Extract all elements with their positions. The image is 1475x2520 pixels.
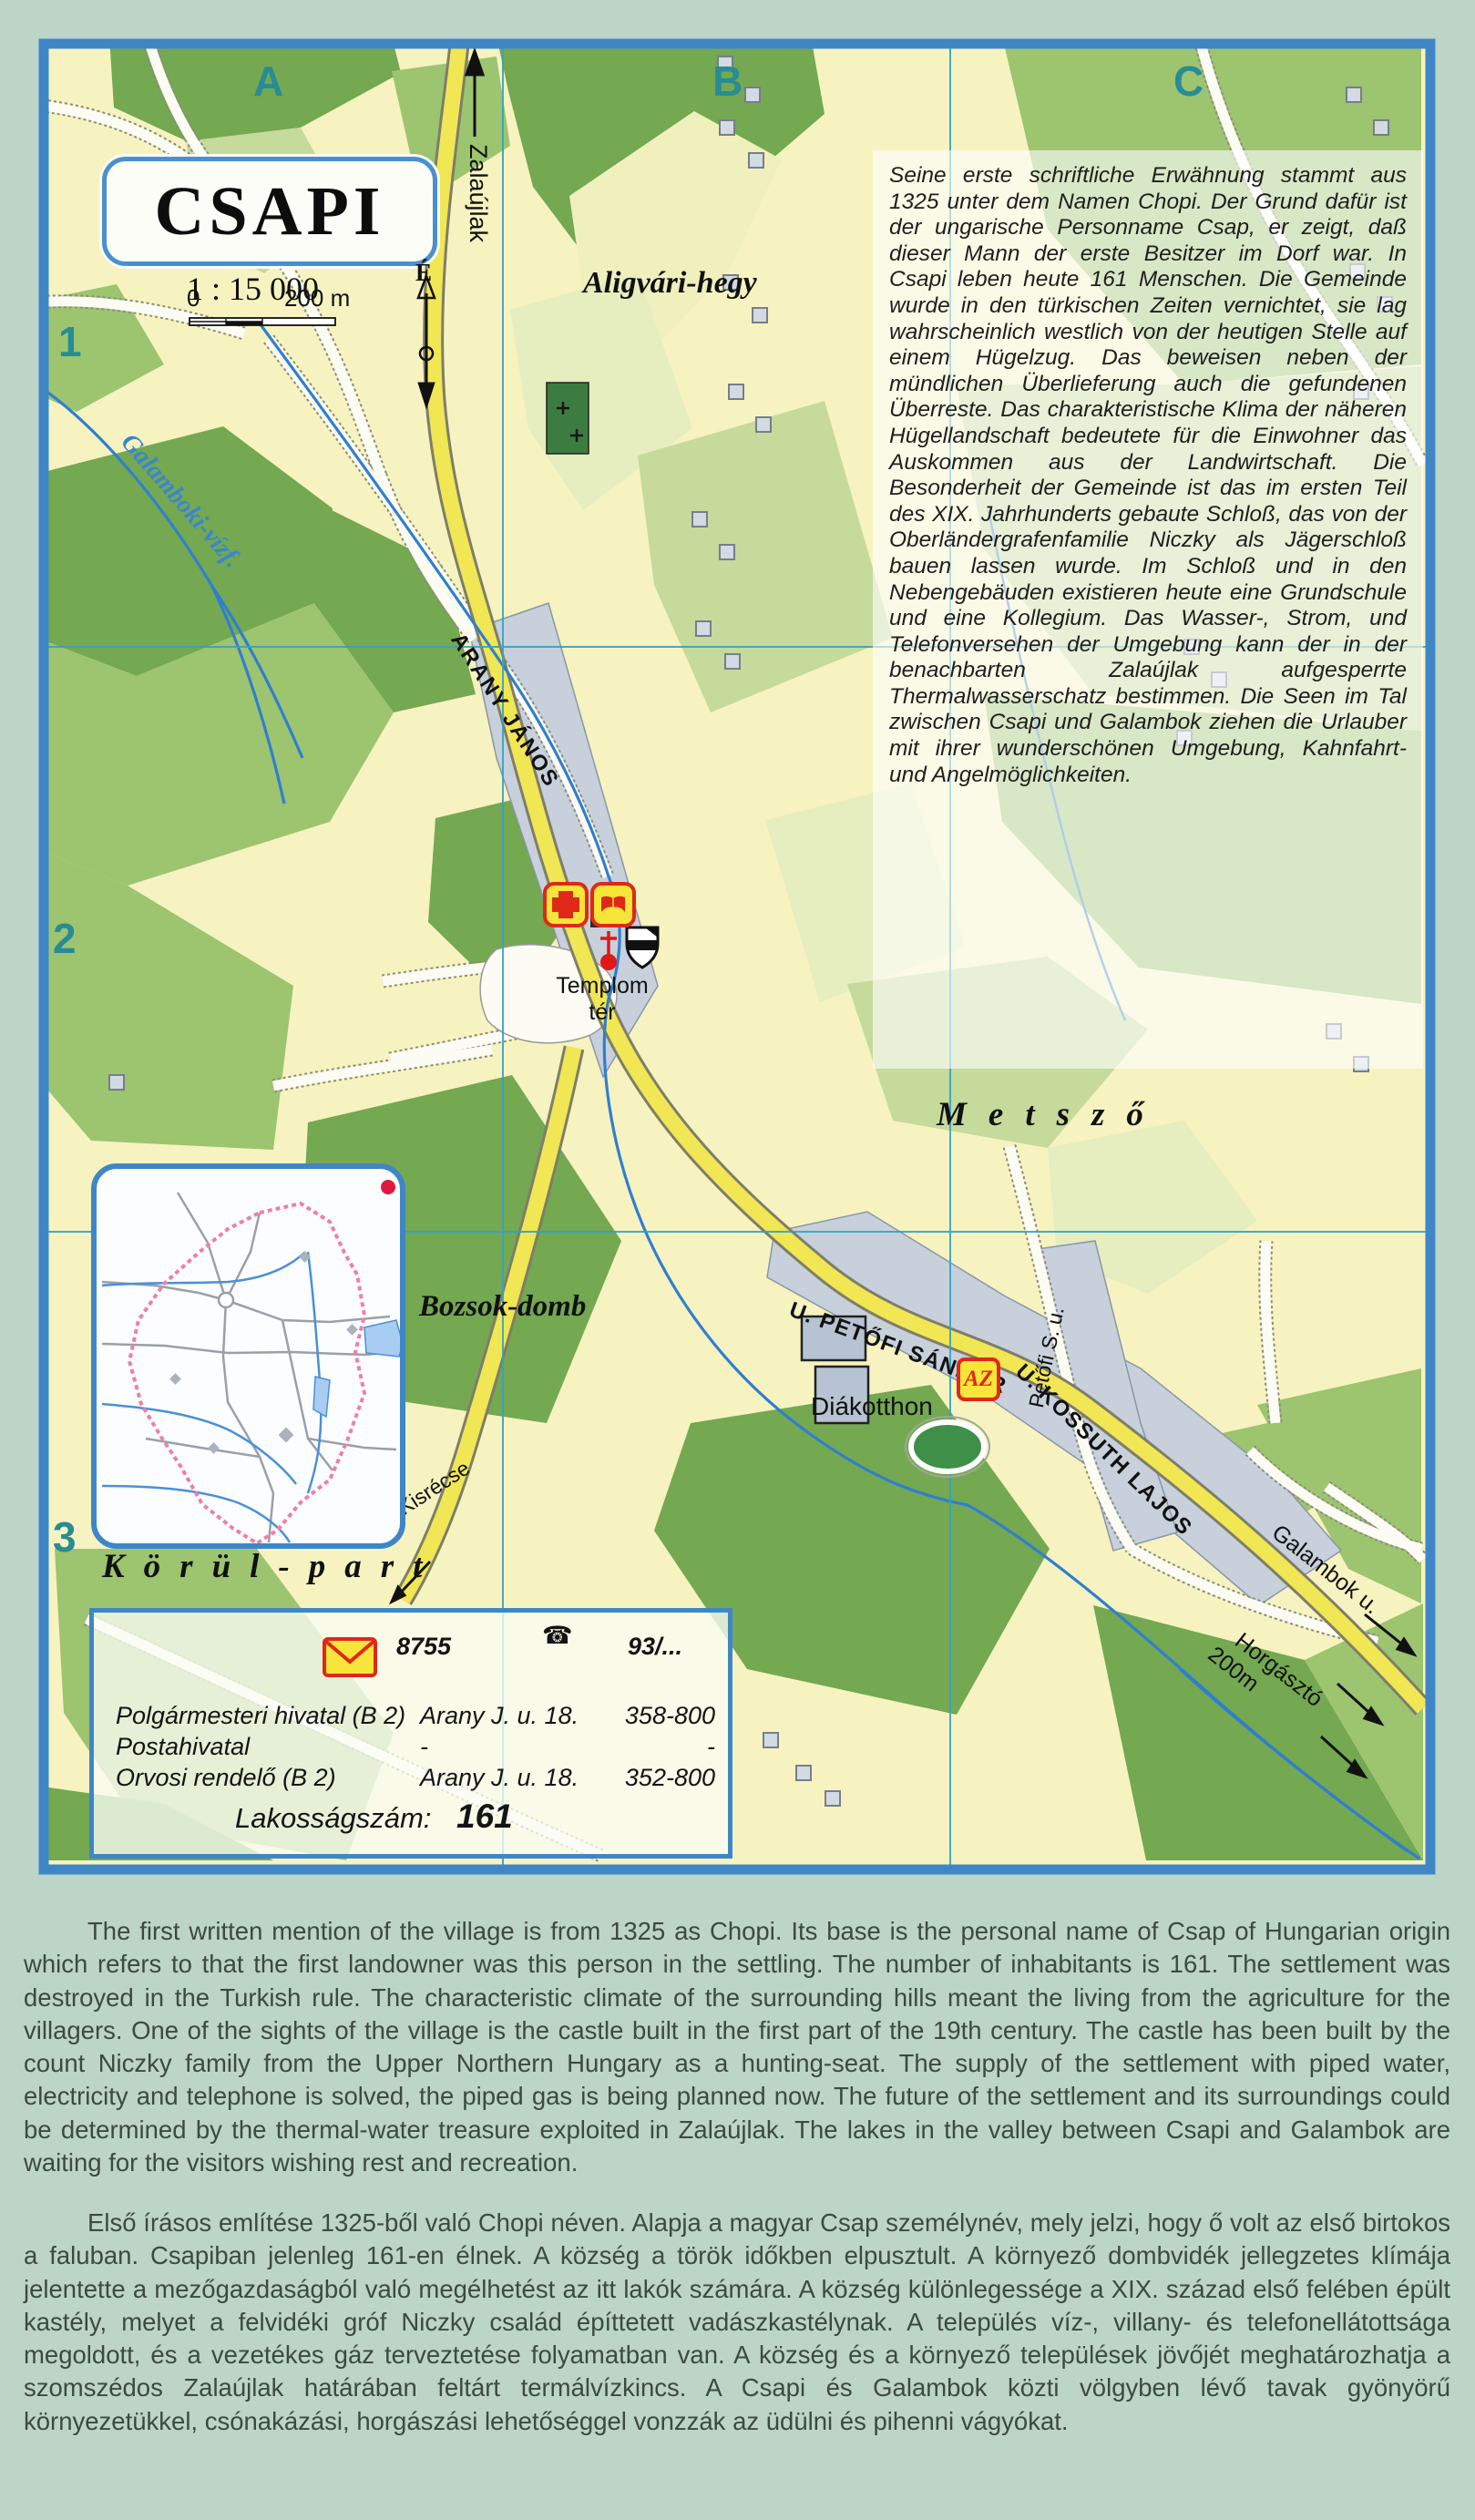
- entry-phone-1: -: [600, 1733, 715, 1761]
- grid-row-1: 1: [58, 317, 82, 366]
- library-icon: [592, 884, 634, 926]
- entry-phone-0: 358-800: [600, 1702, 715, 1730]
- building-label-diakotthon: Diákotthon: [811, 1392, 933, 1421]
- area-label-korul-part: Körül-part: [102, 1547, 441, 1586]
- region-inset-map: [91, 1163, 405, 1549]
- inset-region-boundary: [129, 1204, 364, 1543]
- population-value: 161: [456, 1798, 513, 1836]
- entry-name-1: Postahivatal: [116, 1733, 250, 1761]
- cemetery-symbol: [547, 383, 589, 454]
- first-aid-icon: [545, 884, 587, 926]
- phone-prefix: 93/...: [628, 1633, 682, 1661]
- postal-code: 8755: [396, 1633, 451, 1661]
- templom-ter-line1: Templom: [543, 973, 661, 999]
- entry-address-2: Arany J. u. 18.: [420, 1764, 579, 1792]
- grid-row-2: 2: [53, 914, 77, 963]
- az-monument-icon: AZ: [957, 1357, 1000, 1401]
- entry-name-2: Orvosi rendelő (B 2): [116, 1764, 336, 1792]
- scale-distance-label: 200 m: [284, 284, 350, 312]
- village-info-box: 8755 ☎ 93/... Polgármesteri hivatal (B 2…: [89, 1608, 732, 1859]
- grid-column-a: A: [253, 56, 283, 106]
- entry-name-0: Polgármesteri hivatal (B 2): [116, 1702, 405, 1730]
- square-label-templom-ter: Templom tér: [543, 973, 661, 1026]
- scale-zero-label: 0: [187, 284, 200, 312]
- entry-phone-2: 352-800: [600, 1764, 715, 1792]
- phone-icon: ☎: [542, 1624, 573, 1648]
- hungarian-description: Első írásos említése 1325-ből való Chopi…: [24, 2207, 1450, 2438]
- english-description: The first written mention of the village…: [24, 1915, 1450, 2179]
- page-title: CSAPI: [154, 172, 384, 251]
- map-title-box: CSAPI: [102, 157, 437, 266]
- postal-envelope-icon: [322, 1636, 378, 1678]
- german-description-panel: Seine erste schriftliche Erwähnung stamm…: [873, 150, 1423, 1069]
- road-destination-zalaujlak: Zalaújlak: [464, 144, 492, 242]
- hill-label-aligvari-hegy: Aligvári-hegy: [583, 266, 757, 301]
- inset-roads: [102, 1193, 396, 1542]
- population-label: Lakosságszám:: [235, 1802, 431, 1835]
- entry-address-0: Arany J. u. 18.: [420, 1702, 579, 1730]
- north-label: É: [415, 259, 432, 287]
- az-badge-text: AZ: [964, 1367, 993, 1392]
- templom-ter-line2: tér: [543, 999, 661, 1026]
- hill-label-bozsok-domb: Bozsok-domb: [419, 1290, 586, 1324]
- grid-row-3: 3: [53, 1512, 77, 1562]
- scale-bar: [189, 318, 335, 325]
- atlas-page: A B C 1 2 3 CSAPI 1 : 15 000 0 200 m É Z…: [0, 0, 1475, 2520]
- area-label-metszo: Metsző: [937, 1095, 1165, 1134]
- inset-road-junction: [219, 1293, 233, 1307]
- grid-column-b: B: [712, 56, 743, 106]
- sports-field: [906, 1417, 989, 1477]
- inset-village-location-dot: [381, 1180, 395, 1194]
- grid-column-c: C: [1173, 56, 1204, 106]
- inset-lakes: [313, 1320, 400, 1417]
- entry-address-1: -: [420, 1733, 428, 1761]
- inset-map-canvas: [97, 1169, 400, 1543]
